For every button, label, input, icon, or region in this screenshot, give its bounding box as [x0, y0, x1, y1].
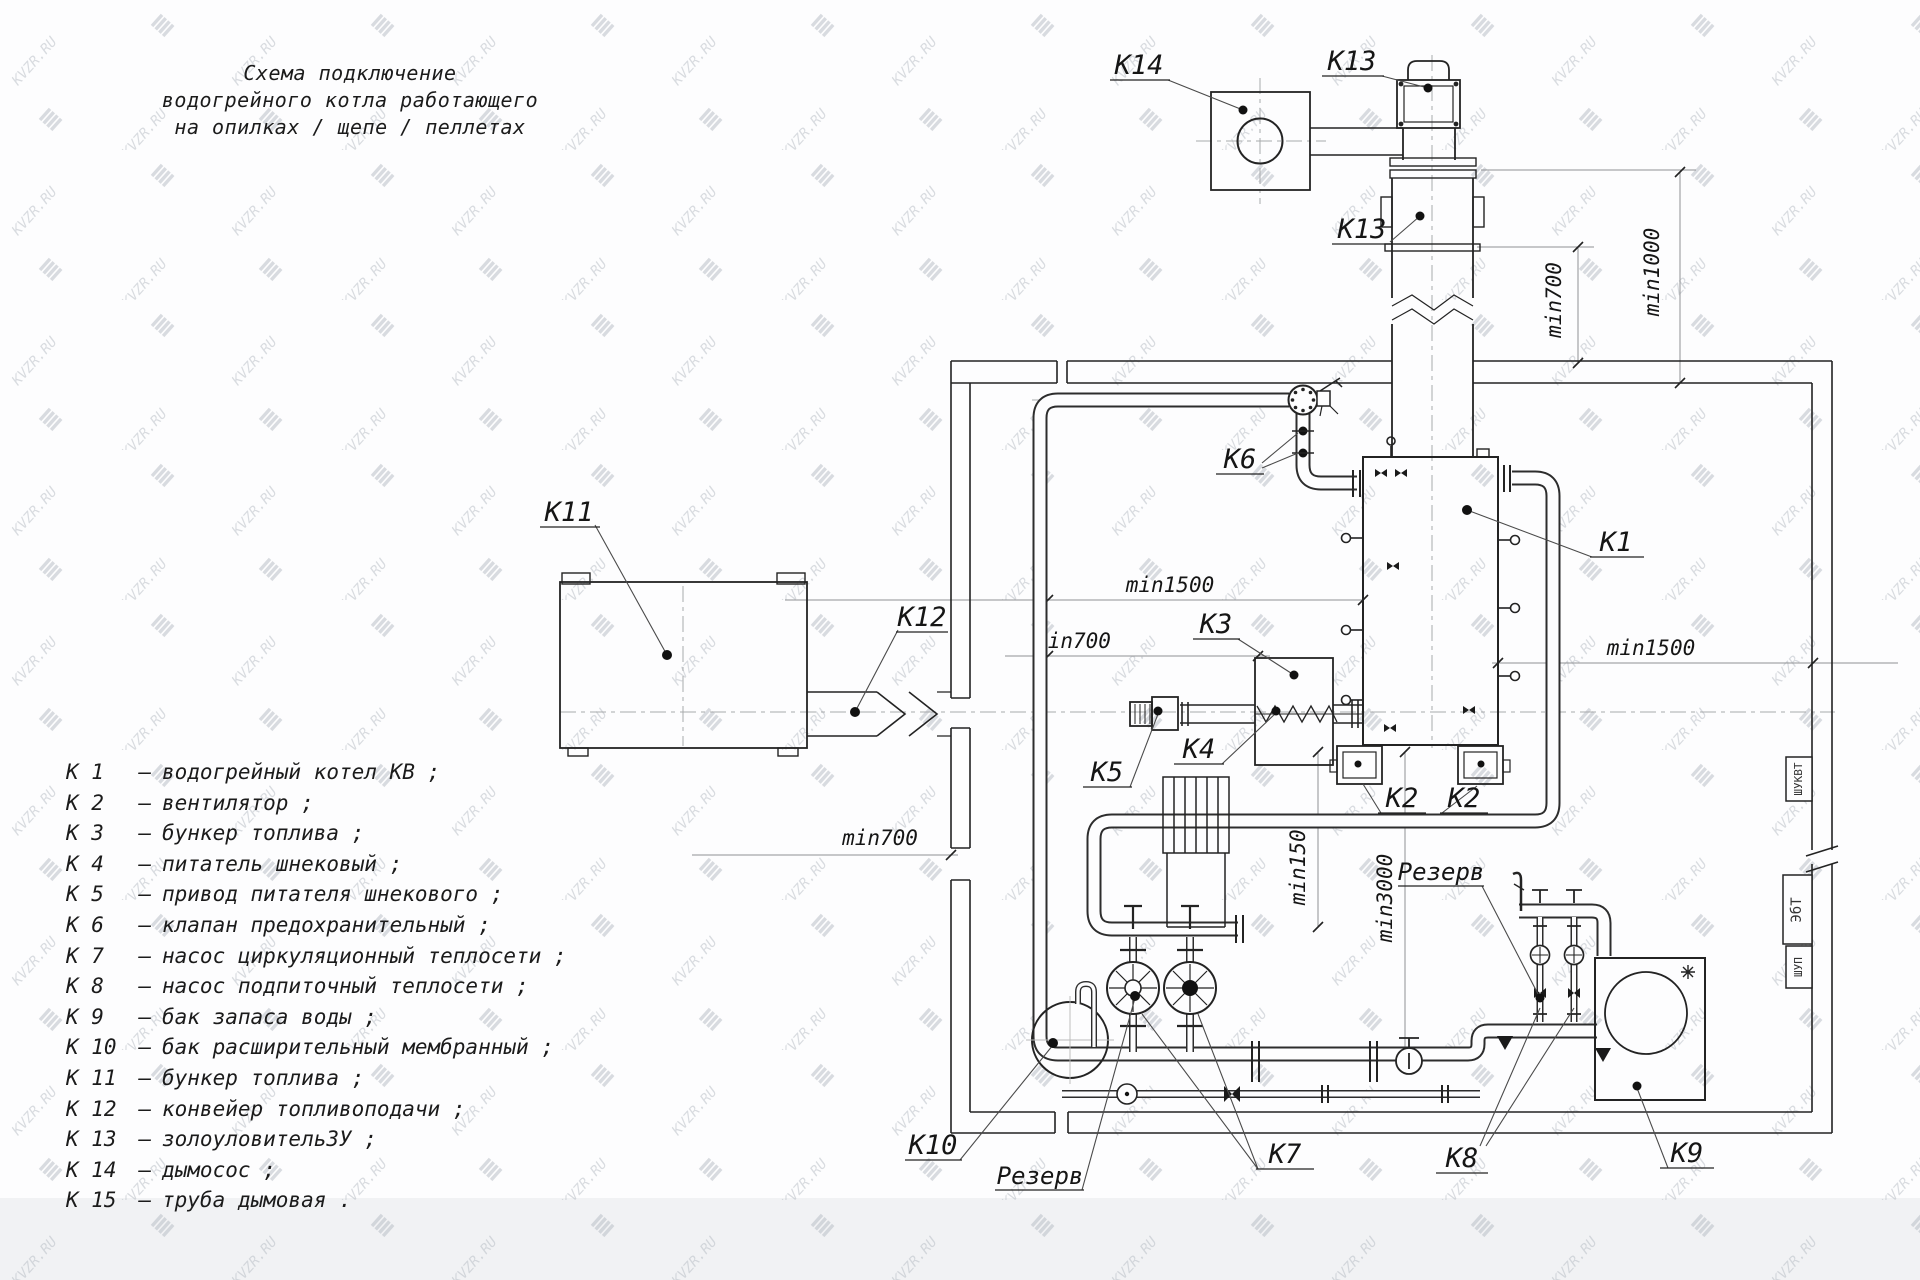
legend-item-k10: К 10–бак расширительный мембранный ; — [66, 1035, 586, 1066]
dim-min1500-left: min1500 — [1125, 573, 1215, 597]
star-icon — [1681, 965, 1695, 979]
title-line-1: Схема подключение — [140, 60, 560, 87]
legend-item-k11: К 11–бункер топлива ; — [66, 1066, 586, 1097]
title-line-2: водогрейного котла работающего — [140, 87, 560, 114]
legend-item-k1: К 1–водогрейный котел КВ ; — [66, 760, 586, 791]
legend-item-k8: К 8–насос подпиточный теплосети ; — [66, 974, 586, 1005]
legend-item-k14: К 14–дымосос ; — [66, 1158, 586, 1189]
callout-k7: К7 — [1268, 1139, 1302, 1170]
legend-item-k2: К 2–вентилятор ; — [66, 791, 586, 822]
callout-k13-top: К13 — [1327, 46, 1377, 77]
callout-k14: К14 — [1114, 50, 1164, 81]
callout-k8: К8 — [1445, 1143, 1479, 1174]
callout-k12: К12 — [897, 602, 947, 633]
legend-item-k3: К 3–бункер топлива ; — [66, 821, 586, 852]
callout-k6: К6 — [1223, 444, 1257, 475]
callout-k9: К9 — [1670, 1138, 1704, 1169]
legend-item-k12: К 12–конвейер топливоподачи ; — [66, 1097, 586, 1128]
callout-k10: К10 — [908, 1130, 958, 1161]
panel-shup: ШУП — [1792, 957, 1805, 977]
legend-item-k9: К 9–бак запаса воды ; — [66, 1005, 586, 1036]
dim-min1000-top: min1000 — [1640, 228, 1664, 318]
callout-k5: К5 — [1090, 757, 1124, 788]
callout-k11: К11 — [544, 497, 594, 528]
callout-k13-mid: К13 — [1337, 214, 1387, 245]
dim-min700-low: min700 — [841, 826, 918, 850]
panel-shukvt: ШУКВТ — [1792, 762, 1805, 795]
dim-min3000-vert: min3000 — [1373, 854, 1397, 944]
callout-reserve-right: Резерв — [1398, 858, 1485, 886]
callout-k3: К3 — [1199, 609, 1233, 640]
callout-k1: К1 — [1599, 527, 1633, 558]
drawing-sheet: KVZR.RU KVZR.RU — [0, 0, 1920, 1280]
panel-ebt: ЭбТ — [1789, 897, 1805, 923]
callout-k2-right: К2 — [1447, 783, 1481, 814]
drawing-title: Схема подключение водогрейного котла раб… — [140, 60, 560, 141]
dim-min1500-right: min1500 — [1606, 636, 1696, 660]
legend-item-k7: К 7–насос циркуляционный теплосети ; — [66, 944, 586, 975]
legend-item-k15: К 15–труба дымовая . — [66, 1188, 586, 1219]
title-line-3: на опилках / щепе / пеллетах — [140, 114, 560, 141]
legend-item-k6: К 6–клапан предохранительный ; — [66, 913, 586, 944]
dim-min1500-vert: min1500 — [1286, 817, 1310, 907]
dim-min700-top: min700 — [1542, 262, 1566, 339]
legend-item-k5: К 5–привод питателя шнекового ; — [66, 882, 586, 913]
legend: К 1–водогрейный котел КВ ; К 2–вентилято… — [66, 760, 586, 1219]
callout-k2-left: К2 — [1385, 783, 1419, 814]
legend-item-k4: К 4–питатель шнековый ; — [66, 852, 586, 883]
legend-item-k13: К 13–золоуловительЗУ ; — [66, 1127, 586, 1158]
callout-reserve-left: Резерв — [997, 1162, 1084, 1190]
callout-k4: К4 — [1182, 734, 1216, 765]
